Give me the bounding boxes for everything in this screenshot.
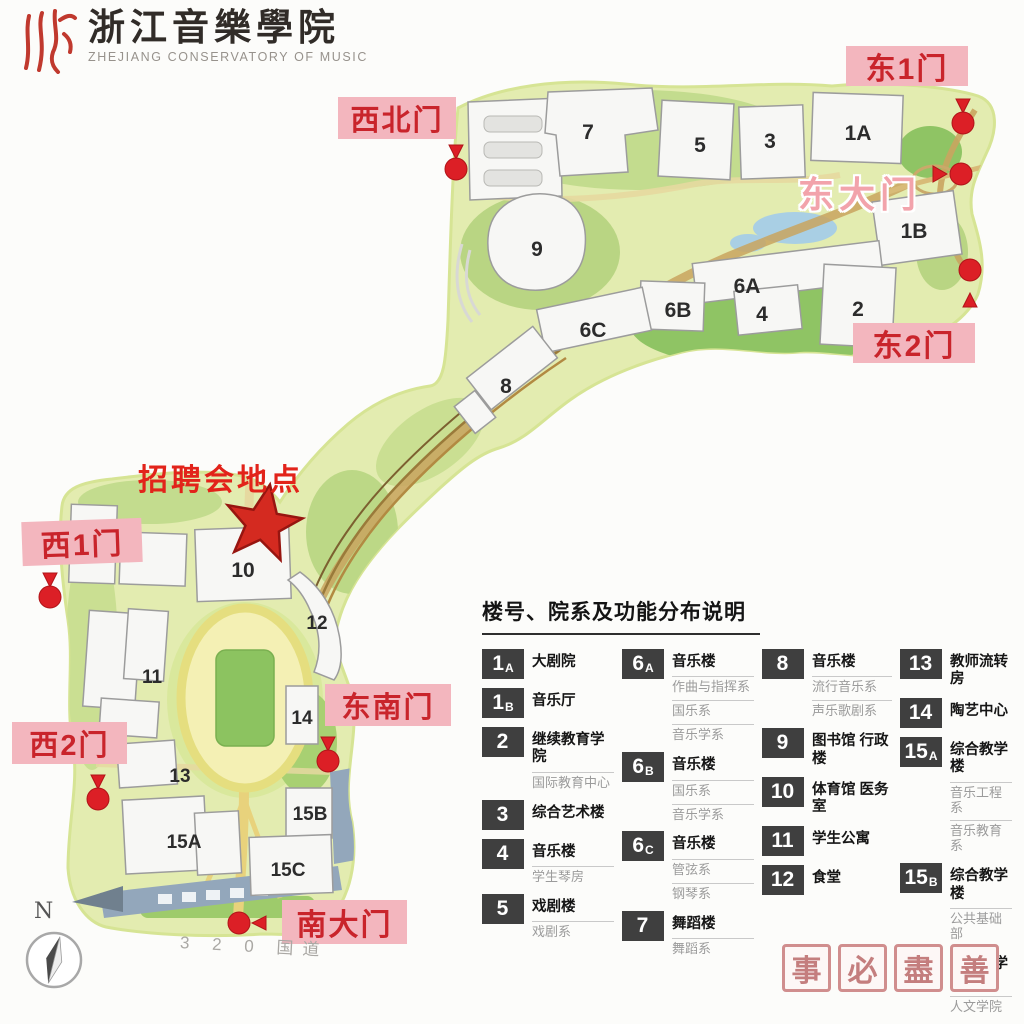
label-7: 7 xyxy=(582,121,594,144)
logo-title-cn: 浙江音樂學院 xyxy=(88,8,368,47)
legend-title: 楼号、院系及功能分布说明 xyxy=(482,596,760,635)
gate-label-east-main: 东大门 xyxy=(798,166,921,218)
label-6B: 6B xyxy=(665,299,692,322)
legend-column-1: 1A 大剧院 1B 音乐厅 2 继续教育学院 国际教育中心 3 综合艺术楼 4 xyxy=(482,649,622,1024)
logo: 浙江音樂學院 ZHEJIANG CONSERVATORY OF MUSIC xyxy=(20,8,368,74)
motto-seal-stamps: 事 必 盡 善 xyxy=(782,944,999,992)
compass-n-label: N xyxy=(34,899,53,924)
legend-entry-11: 11 学生公寓 xyxy=(762,826,900,856)
label-6A: 6A xyxy=(734,275,761,298)
northwest-gate-dot xyxy=(445,158,467,180)
label-15A: 15A xyxy=(167,832,202,853)
label-8: 8 xyxy=(500,375,512,398)
logo-seal-icon xyxy=(20,8,78,74)
seal-stamp-icon: 必 xyxy=(838,944,887,992)
east1-gate-dot xyxy=(952,112,974,134)
gate-label-northwest: 西北门 xyxy=(338,97,456,139)
seal-stamp-icon: 事 xyxy=(782,944,831,992)
label-15B: 15B xyxy=(293,804,328,825)
east-main-gate-dot xyxy=(950,163,972,185)
label-11: 11 xyxy=(142,667,163,688)
label-9: 9 xyxy=(531,238,543,261)
label-1B: 1B xyxy=(901,220,928,243)
label-3: 3 xyxy=(764,130,776,153)
label-4: 4 xyxy=(756,303,768,326)
east2-gate-dot xyxy=(959,259,981,281)
legend-entry-6A: 6A 音乐楼 作曲与指挥系 国乐系 音乐学系 xyxy=(622,649,762,743)
legend-entry-10: 10 体育馆 医务室 xyxy=(762,777,900,817)
legend-entry-9: 9 图书馆 行政楼 xyxy=(762,728,900,768)
label-12: 12 xyxy=(306,613,327,634)
legend-entry-5: 5 戏剧楼 戏剧系 xyxy=(482,894,622,940)
legend-entry-2: 2 继续教育学院 国际教育中心 xyxy=(482,727,622,791)
label-14: 14 xyxy=(291,708,313,729)
label-15C: 15C xyxy=(271,860,306,881)
logo-title-en: ZHEJIANG CONSERVATORY OF MUSIC xyxy=(88,50,368,64)
legend-entry-7: 7 舞蹈楼 舞蹈系 xyxy=(622,911,762,957)
west1-gate-arrow-icon xyxy=(43,573,57,587)
label-13: 13 xyxy=(169,766,190,787)
legend-entry-3: 3 综合艺术楼 xyxy=(482,800,622,830)
label-10: 10 xyxy=(231,559,254,582)
gate-label-east2: 东2门 xyxy=(853,323,975,363)
label-6C: 6C xyxy=(580,319,607,342)
legend-column-2: 6A 音乐楼 作曲与指挥系 国乐系 音乐学系 6B 音乐楼 国乐系 音乐学系 6… xyxy=(622,649,762,1024)
label-1A: 1A xyxy=(845,122,872,145)
legend-entry-6C: 6C 音乐楼 管弦系 钢琴系 xyxy=(622,831,762,901)
gate-label-west1: 西1门 xyxy=(21,518,142,566)
legend-entry-15B: 15B 综合教学楼 公共基础部 xyxy=(900,863,1020,942)
seal-stamp-icon: 善 xyxy=(950,944,999,992)
legend-entry-8: 8 音乐楼 流行音乐系 声乐歌剧系 xyxy=(762,649,900,719)
legend-entry-15A: 15A 综合教学楼 音乐工程系 音乐教育系 xyxy=(900,737,1020,855)
legend-entry-13: 13 教师流转房 xyxy=(900,649,1020,689)
legend-entry-4: 4 音乐楼 学生琴房 xyxy=(482,839,622,885)
legend-entry-1B: 1B 音乐厅 xyxy=(482,688,622,718)
gate-label-southeast: 东南门 xyxy=(325,684,451,726)
west2-gate-dot xyxy=(87,788,109,810)
label-2: 2 xyxy=(852,298,864,321)
legend-entry-6B: 6B 音乐楼 国乐系 音乐学系 xyxy=(622,752,762,822)
gate-label-east1: 东1门 xyxy=(846,46,968,86)
legend-entry-12: 12 食堂 xyxy=(762,865,900,895)
compass: N xyxy=(16,896,96,1005)
legend-entry-1A: 1A 大剧院 xyxy=(482,649,622,679)
label-5: 5 xyxy=(694,134,706,157)
legend-entry-14: 14 陶艺中心 xyxy=(900,698,1020,728)
southeast-gate-dot xyxy=(317,750,339,772)
job-fair-location-label: 招聘会地点 xyxy=(138,455,303,499)
gate-label-west2: 西2门 xyxy=(12,722,127,764)
west1-gate-dot xyxy=(39,586,61,608)
seal-stamp-icon: 盡 xyxy=(894,944,943,992)
